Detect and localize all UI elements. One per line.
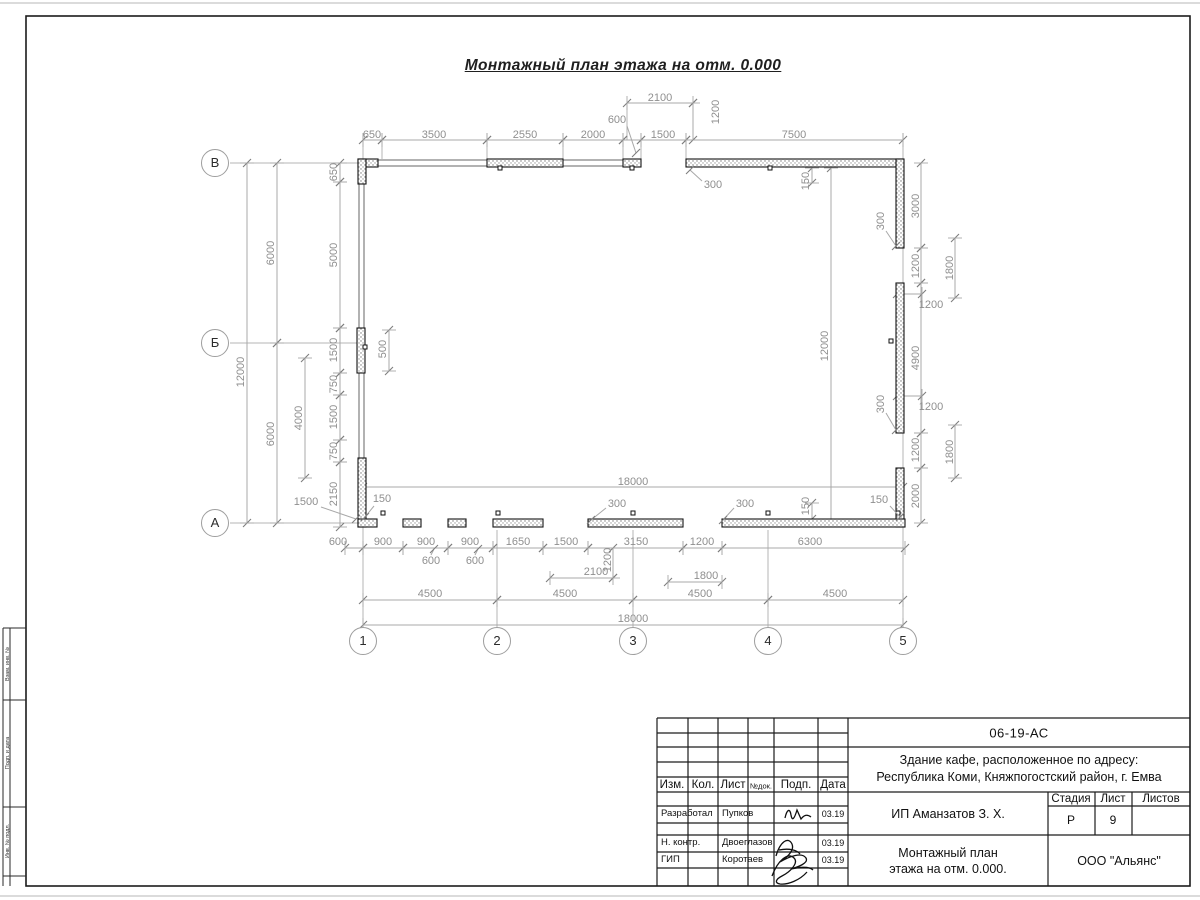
axis-bubbles: ВБА12345: [202, 150, 917, 655]
dim-label: 12000: [235, 357, 247, 388]
col-ndok: №док.: [750, 782, 772, 791]
leader-label: 600: [466, 555, 484, 567]
dim-label: 900: [461, 536, 479, 548]
leader-line: [886, 231, 896, 246]
signatures: [772, 810, 813, 884]
col-list: Лист: [721, 779, 746, 791]
dim-label: 6000: [265, 241, 277, 265]
mounting-mark: [766, 511, 770, 515]
row-role-1: Н. контр.: [661, 837, 700, 848]
axis-bubble-label: Б: [211, 335, 220, 350]
wall-panel: [448, 519, 466, 527]
object-address-1: Здание кафе, расположенное по адресу:: [900, 753, 1139, 767]
dim-label: 600: [329, 536, 347, 548]
wall-panel: [403, 519, 421, 527]
margin-label-vzam: Взам. инв. №: [5, 647, 11, 681]
window-wall: [563, 160, 623, 166]
mounting-mark: [889, 339, 893, 343]
dim-label: 1200: [919, 401, 943, 413]
leader-line: [321, 507, 356, 519]
leader-label: 300: [875, 395, 887, 413]
col-data: Дата: [820, 779, 845, 791]
sheet-title-1: Монтажный план: [898, 846, 998, 860]
stage-value: Р: [1067, 813, 1075, 827]
sheets-label: Листов: [1142, 793, 1179, 805]
client-name: ИП Аманзатов З. Х.: [891, 807, 1005, 821]
dim-label: 12000: [819, 331, 831, 362]
leader-label: 300: [736, 498, 754, 510]
leader-label: 600: [608, 114, 626, 126]
wall-panel: [493, 519, 543, 527]
row-name-2: Коротаев: [722, 854, 763, 865]
leader-line: [690, 170, 702, 181]
dim-label: 4000: [293, 406, 305, 430]
row-role-0: Разработал: [661, 808, 713, 819]
dim-label: 900: [417, 536, 435, 548]
leader-line: [886, 413, 896, 430]
wall-panel: [358, 519, 377, 527]
wall-panel: [686, 159, 903, 167]
dim-label: 1500: [554, 536, 578, 548]
leader-label: 1500: [294, 496, 318, 508]
dim-label: 4500: [418, 588, 442, 600]
axis-bubble-label: А: [211, 515, 220, 530]
dim-label: 650: [363, 129, 381, 141]
dim-tick: [632, 149, 640, 157]
drawing-sheet: 6503500255020001500750021001200300012004…: [0, 0, 1200, 900]
dim-label: 6000: [265, 422, 277, 446]
wall-panel: [896, 159, 904, 248]
col-kol: Кол.: [692, 779, 715, 791]
window-wall: [359, 373, 364, 458]
sheet-label: Лист: [1101, 793, 1126, 805]
window-wall: [359, 183, 364, 328]
dim-label: 3500: [422, 129, 446, 141]
axis-bubble-label: 1: [359, 633, 366, 648]
dim-label: 150: [800, 172, 812, 190]
margin-label-podp: Подп. и дата: [5, 737, 11, 769]
dim-label: 1200: [919, 299, 943, 311]
row-name-0: Пупков: [722, 808, 753, 819]
dim-label: 750: [328, 442, 340, 460]
dim-label: 1200: [910, 254, 922, 278]
dim-label: 3150: [624, 536, 648, 548]
mounting-mark: [630, 166, 634, 170]
dim-label: 4500: [688, 588, 712, 600]
drawing-title: Монтажный план этажа на отм. 0.000: [465, 57, 782, 75]
dim-label: 650: [328, 163, 340, 181]
wall-panel: [722, 519, 905, 527]
dim-label: 6300: [798, 536, 822, 548]
leader-label: 600: [422, 555, 440, 567]
row-date-1: 03.19: [822, 838, 845, 848]
sheet-title-2: этажа на отм. 0.000.: [889, 862, 1006, 876]
axis-bubble-label: 4: [764, 633, 771, 648]
mounting-mark: [768, 166, 772, 170]
dim-label: 1200: [910, 438, 922, 462]
col-izm: Изм.: [660, 779, 685, 791]
dim-label: 1650: [506, 536, 530, 548]
company-name: ООО "Альянс": [1077, 854, 1161, 868]
dim-label: 1500: [328, 338, 340, 362]
leader-label: 150: [373, 493, 391, 505]
mounting-mark: [381, 511, 385, 515]
dim-label: 2550: [513, 129, 537, 141]
dim-label: 5000: [328, 243, 340, 267]
dimension-lines: 6503500255020001500750021001200300012004…: [235, 92, 962, 632]
axis-bubble-label: В: [211, 155, 220, 170]
dim-label: 3000: [910, 194, 922, 218]
leader-label: 300: [875, 212, 887, 230]
dim-label: 2000: [910, 484, 922, 508]
doc-number: 06-19-АС: [989, 726, 1048, 741]
dim-label: 1200: [690, 536, 714, 548]
wall-panel: [357, 328, 365, 373]
mounting-mark: [363, 345, 367, 349]
stage-label: Стадия: [1051, 793, 1090, 805]
wall-panel: [358, 159, 366, 184]
dim-label: 18000: [618, 476, 649, 488]
dim-label: 2000: [581, 129, 605, 141]
dim-label: 150: [800, 497, 812, 515]
margin-label-inv: Инв. № подл.: [5, 824, 11, 858]
signature-pupkov: [785, 810, 811, 819]
sheet-number: 9: [1110, 813, 1117, 827]
dim-label: 750: [328, 375, 340, 393]
dim-label: 4500: [823, 588, 847, 600]
mounting-mark: [498, 166, 502, 170]
row-name-1: Двоеглазов: [722, 837, 773, 848]
dim-label: 2150: [328, 482, 340, 506]
dim-label: 2100: [648, 92, 672, 104]
mounting-mark: [631, 511, 635, 515]
dim-label: 1200: [710, 100, 722, 124]
dim-label: 4500: [553, 588, 577, 600]
dim-label: 1800: [944, 440, 956, 464]
leader-label: 150: [870, 494, 888, 506]
wall-panel: [896, 283, 904, 433]
dim-label: 500: [377, 340, 389, 358]
row-date-2: 03.19: [822, 855, 845, 865]
dim-label: 1800: [944, 256, 956, 280]
dim-label: 18000: [618, 613, 649, 625]
mounting-mark: [496, 511, 500, 515]
row-role-2: ГИП: [661, 854, 680, 865]
leader-label: 300: [704, 179, 722, 191]
wall-panel: [896, 468, 904, 527]
window-walls: [359, 160, 623, 458]
axis-bubble-label: 2: [493, 633, 500, 648]
axis-bubble-label: 3: [629, 633, 636, 648]
wall-panel: [588, 519, 683, 527]
dim-label: 4900: [910, 346, 922, 370]
dim-label: 1500: [328, 405, 340, 429]
dim-label: 2100: [584, 566, 608, 578]
window-wall: [378, 160, 487, 166]
axis-bubble-label: 5: [899, 633, 906, 648]
row-date-0: 03.19: [822, 809, 845, 819]
dim-label: 900: [374, 536, 392, 548]
dim-label: 1500: [651, 129, 675, 141]
dim-label: 7500: [782, 129, 806, 141]
leader-label: 300: [608, 498, 626, 510]
object-address-2: Республика Коми, Княжпогостский район, г…: [876, 770, 1161, 784]
col-podp: Подп.: [781, 779, 812, 791]
dim-label: 1800: [694, 570, 718, 582]
